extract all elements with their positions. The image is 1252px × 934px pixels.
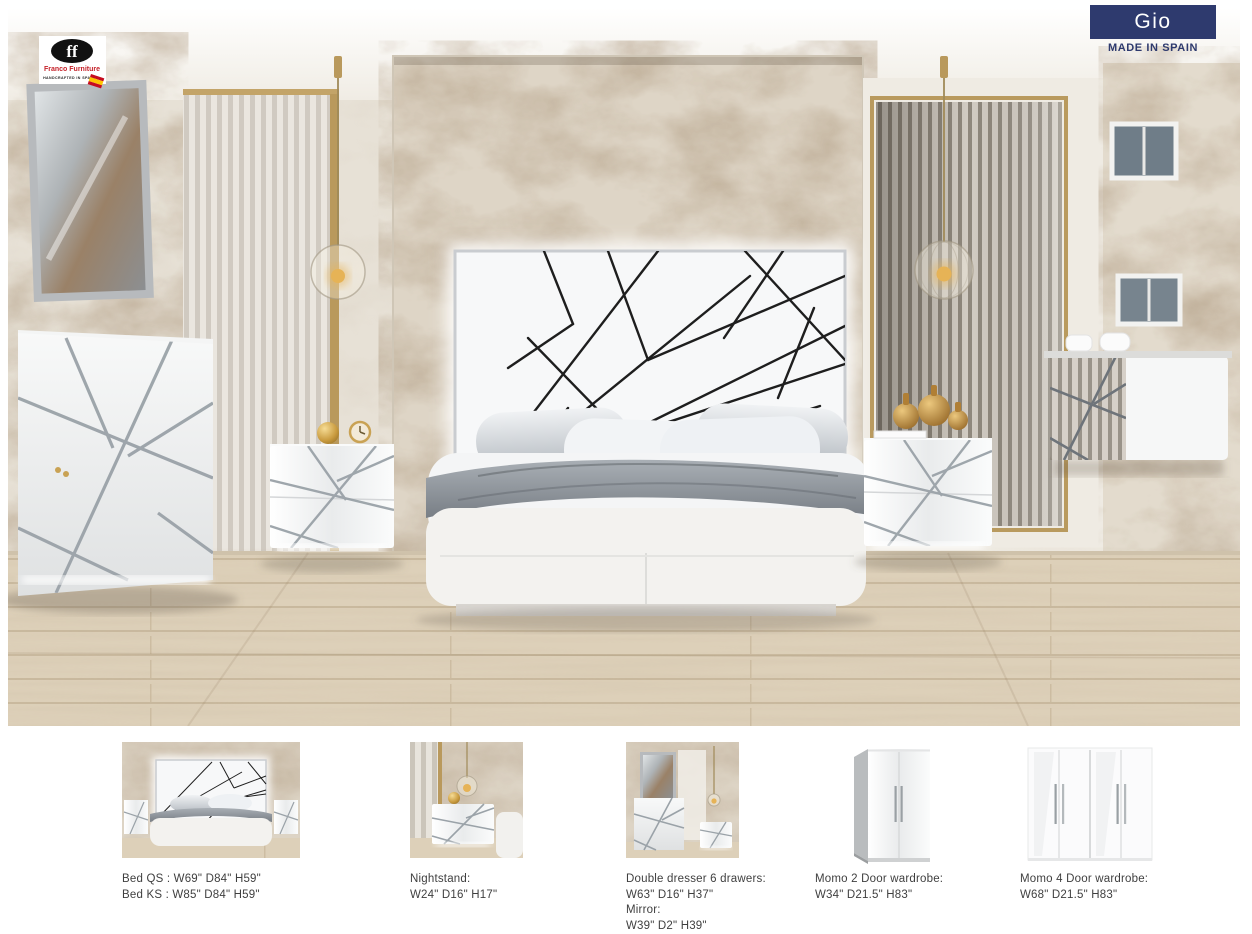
made-in-label: MADE IN SPAIN xyxy=(1090,42,1216,54)
nightstand-thumbnail xyxy=(410,742,523,858)
led-glow xyxy=(872,542,984,549)
product-double-dresser: Double dresser 6 drawers: W63" D16" H37"… xyxy=(626,742,766,934)
bedroom-scene xyxy=(8,8,1240,726)
wardrobe-4-door-thumbnail xyxy=(1020,740,1160,865)
window-top xyxy=(1112,124,1176,178)
dresser-caption: Double dresser 6 drawers: W63" D16" H37"… xyxy=(626,872,766,934)
led-glow xyxy=(22,576,210,584)
window-bottom xyxy=(1118,276,1180,324)
product-wardrobe-2-door: Momo 2 Door wardrobe: W34" D21.5" H83" xyxy=(815,740,945,903)
caption-line: Bed QS : W69" D84" H59" xyxy=(122,872,300,888)
collection-name: Gio xyxy=(1134,10,1171,34)
catalog-page: { "colors": { "banner_navy": "#2e3a6e", … xyxy=(0,0,1252,929)
hero-room-photo: ff Franco Furniture HANDCRAFTED IN SPAIN xyxy=(8,8,1240,726)
caption-line: W34" D21.5" H83" xyxy=(815,888,945,904)
bed xyxy=(416,242,876,632)
caption-line: Momo 2 Door wardrobe: xyxy=(815,872,945,888)
caption-line: Double dresser 6 drawers: xyxy=(626,872,766,888)
led-glow xyxy=(278,544,386,551)
wardrobe-2-door-caption: Momo 2 Door wardrobe: W34" D21.5" H83" xyxy=(815,872,945,903)
caption-line: Momo 4 Door wardrobe: xyxy=(1020,872,1160,888)
nightstand-caption: Nightstand: W24" D16" H17" xyxy=(410,872,523,903)
caption-line: Bed KS : W85" D84" H59" xyxy=(122,888,300,904)
gold-handle xyxy=(63,471,69,477)
caption-line: Nightstand: xyxy=(410,872,523,888)
ff-monogram-text: ff xyxy=(66,42,78,61)
product-nightstand: Nightstand: W24" D16" H17" xyxy=(410,742,523,903)
caption-line: W24" D16" H17" xyxy=(410,888,523,904)
vessel xyxy=(1066,335,1092,351)
caption-line: Mirror: xyxy=(626,903,766,919)
gold-trim-top xyxy=(183,89,339,95)
caption-line: W68" D21.5" H83" xyxy=(1020,888,1160,904)
collection-banner: Gio xyxy=(1090,5,1216,39)
caption-line: W39" D2" H39" xyxy=(626,919,766,934)
product-bed: Bed QS : W69" D84" H59" Bed KS : W85" D8… xyxy=(122,742,300,903)
brand-tagline: HANDCRAFTED IN SPAIN xyxy=(43,76,95,80)
product-wardrobe-4-door: Momo 4 Door wardrobe: W68" D21.5" H83" xyxy=(1020,740,1160,903)
caption-line: W63" D16" H37" xyxy=(626,888,766,904)
book-decor xyxy=(874,431,926,438)
nightstand-left xyxy=(260,422,404,573)
gold-sphere-decor xyxy=(317,422,339,444)
bed-thumbnail xyxy=(122,742,300,858)
dresser-thumbnail xyxy=(626,742,739,858)
bed-caption: Bed QS : W69" D84" H59" Bed KS : W85" D8… xyxy=(122,872,300,903)
floating-vanity xyxy=(1044,333,1232,476)
gold-handle xyxy=(55,467,61,473)
brand-name: Franco Furniture xyxy=(44,66,100,73)
vanity-counter xyxy=(1044,351,1232,358)
vessel xyxy=(1100,333,1130,351)
wardrobe-2-door-thumbnail xyxy=(838,740,945,865)
brand-logo: ff Franco Furniture HANDCRAFTED IN SPAIN xyxy=(39,36,109,94)
mirrored-chest xyxy=(8,330,238,614)
wardrobe-4-door-caption: Momo 4 Door wardrobe: W68" D21.5" H83" xyxy=(1020,872,1160,903)
wall-mirror xyxy=(26,80,154,302)
